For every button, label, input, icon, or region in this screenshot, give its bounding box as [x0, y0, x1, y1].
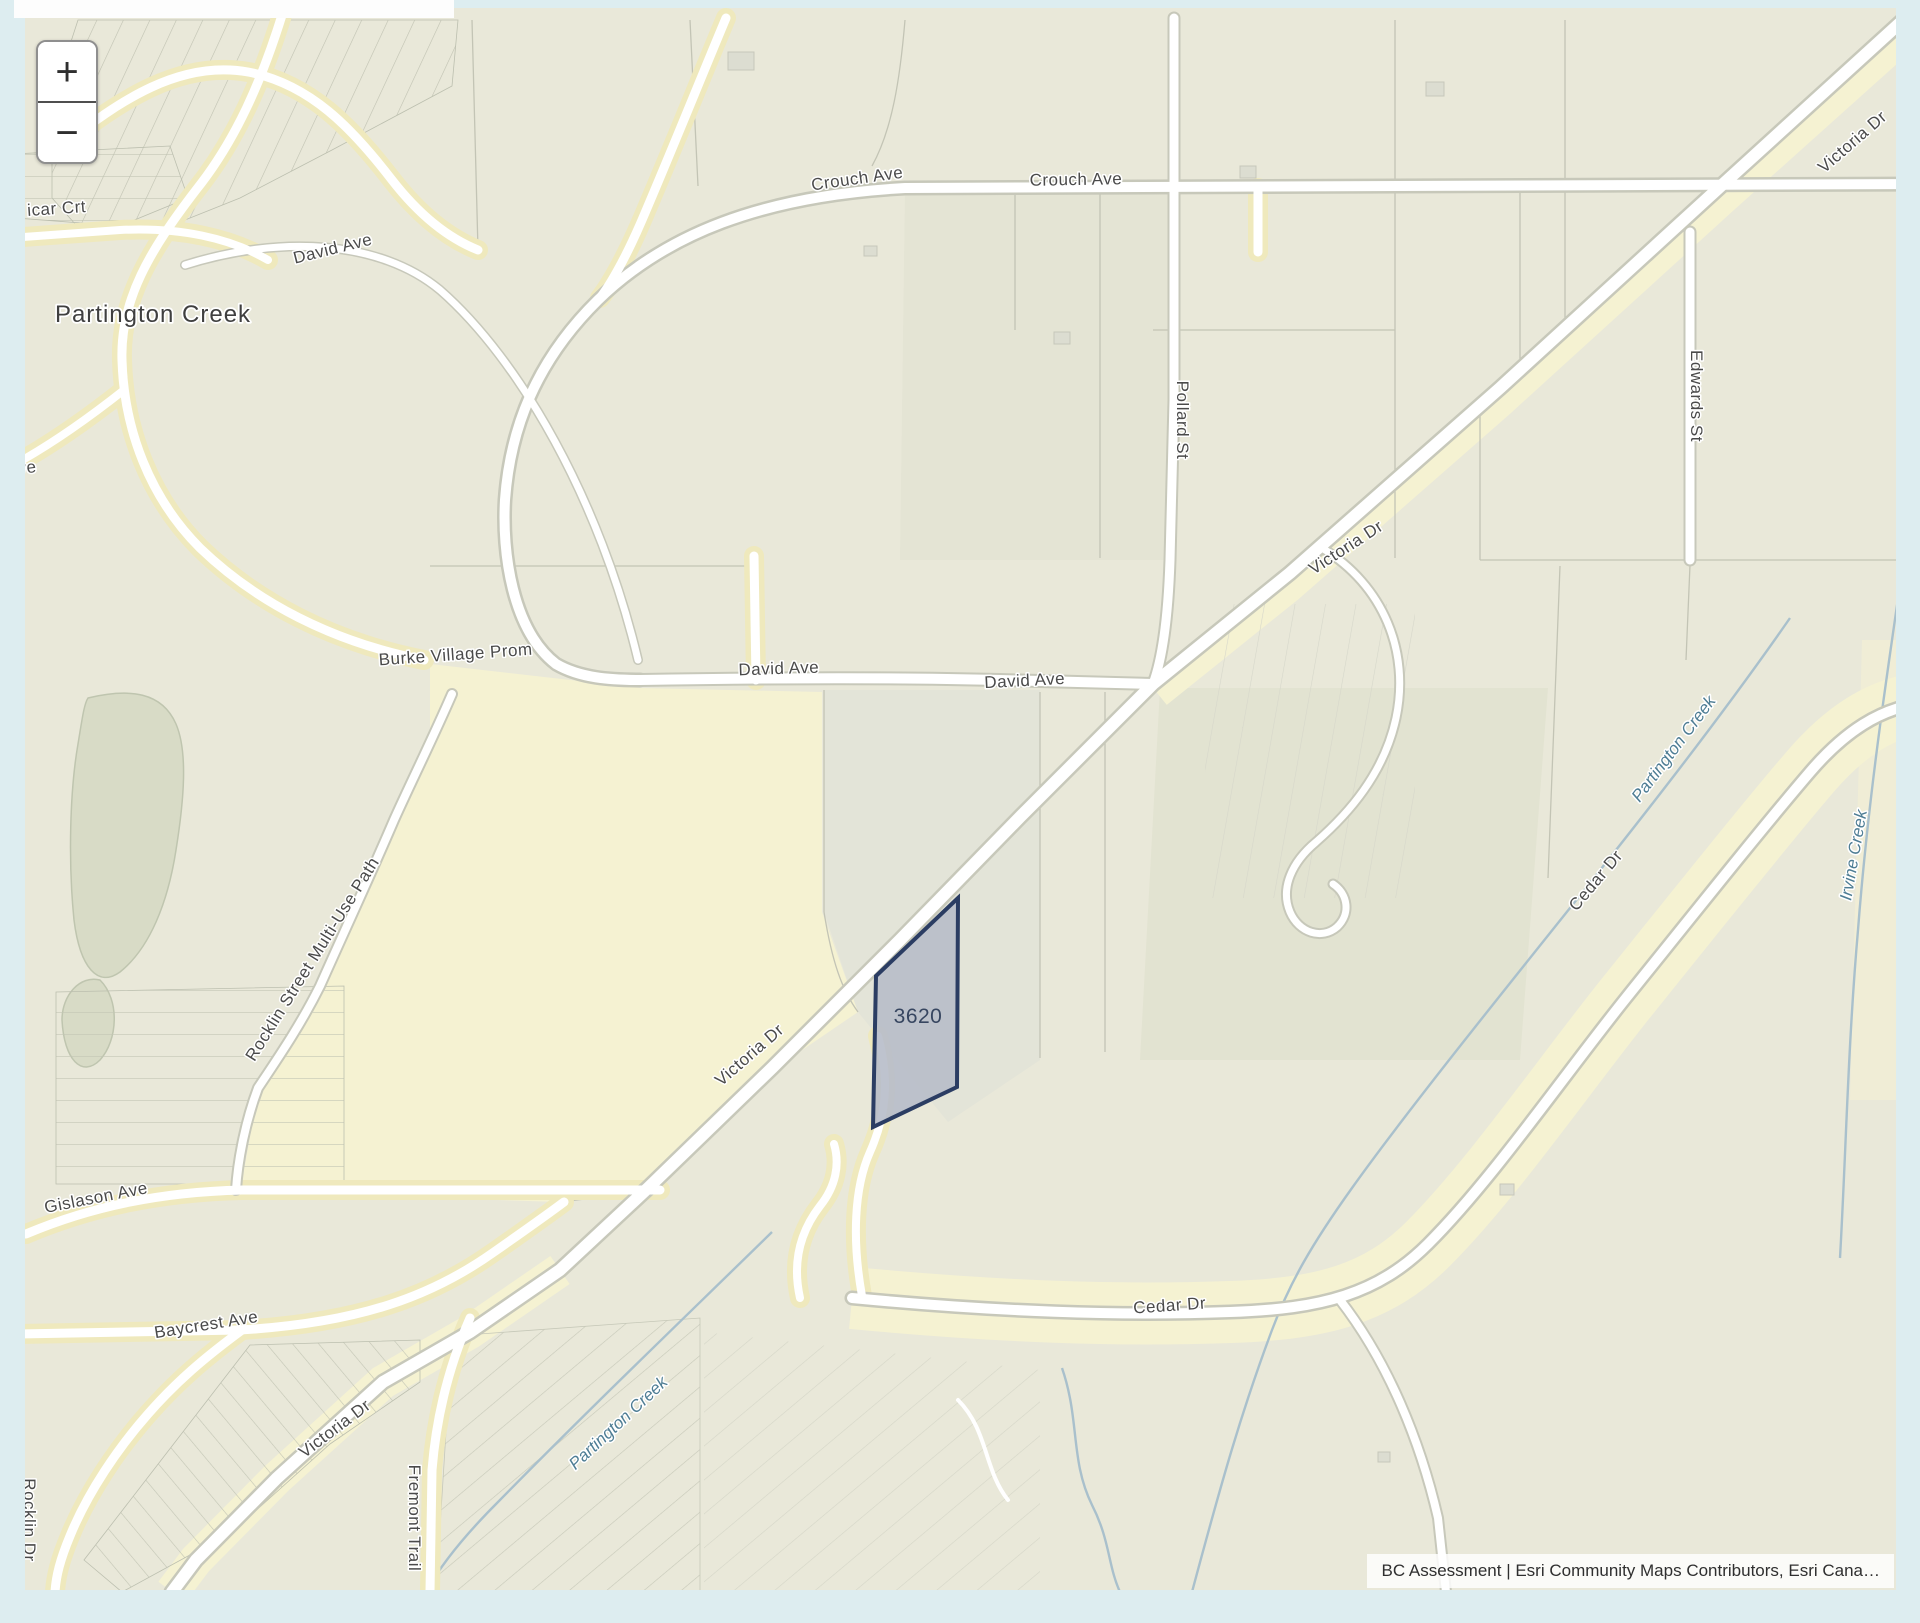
zoom-out-button[interactable]: −: [38, 103, 96, 162]
map-label-david-ave-center-west: David Ave: [738, 658, 819, 680]
page: icar CrtPartington CreekDavid AveCrouch …: [0, 0, 1920, 1623]
map-canvas[interactable]: icar CrtPartington CreekDavid AveCrouch …: [0, 0, 1920, 1623]
map-label-rocklin-dr: Rocklin Dr: [20, 1478, 39, 1561]
map-label-fremont-trail: Fremont Trail: [405, 1465, 424, 1572]
map-attribution: BC Assessment | Esri Community Maps Cont…: [1367, 1554, 1894, 1588]
zoom-in-button[interactable]: +: [38, 42, 96, 101]
map-image: icar CrtPartington CreekDavid AveCrouch …: [0, 0, 1920, 1623]
map-label-crouch-ave-east: Crouch Ave: [1029, 169, 1122, 190]
map-label-pollard-st: Pollard St: [1173, 381, 1192, 460]
top-strip: [14, 0, 454, 18]
map-label-edwards-st: Edwards St: [1687, 350, 1706, 442]
map-label-parcel-3620: 3620: [894, 1005, 943, 1028]
map-label-partington-creek-place: Partington Creek: [55, 301, 251, 328]
map-zoom-control: + −: [36, 40, 98, 164]
